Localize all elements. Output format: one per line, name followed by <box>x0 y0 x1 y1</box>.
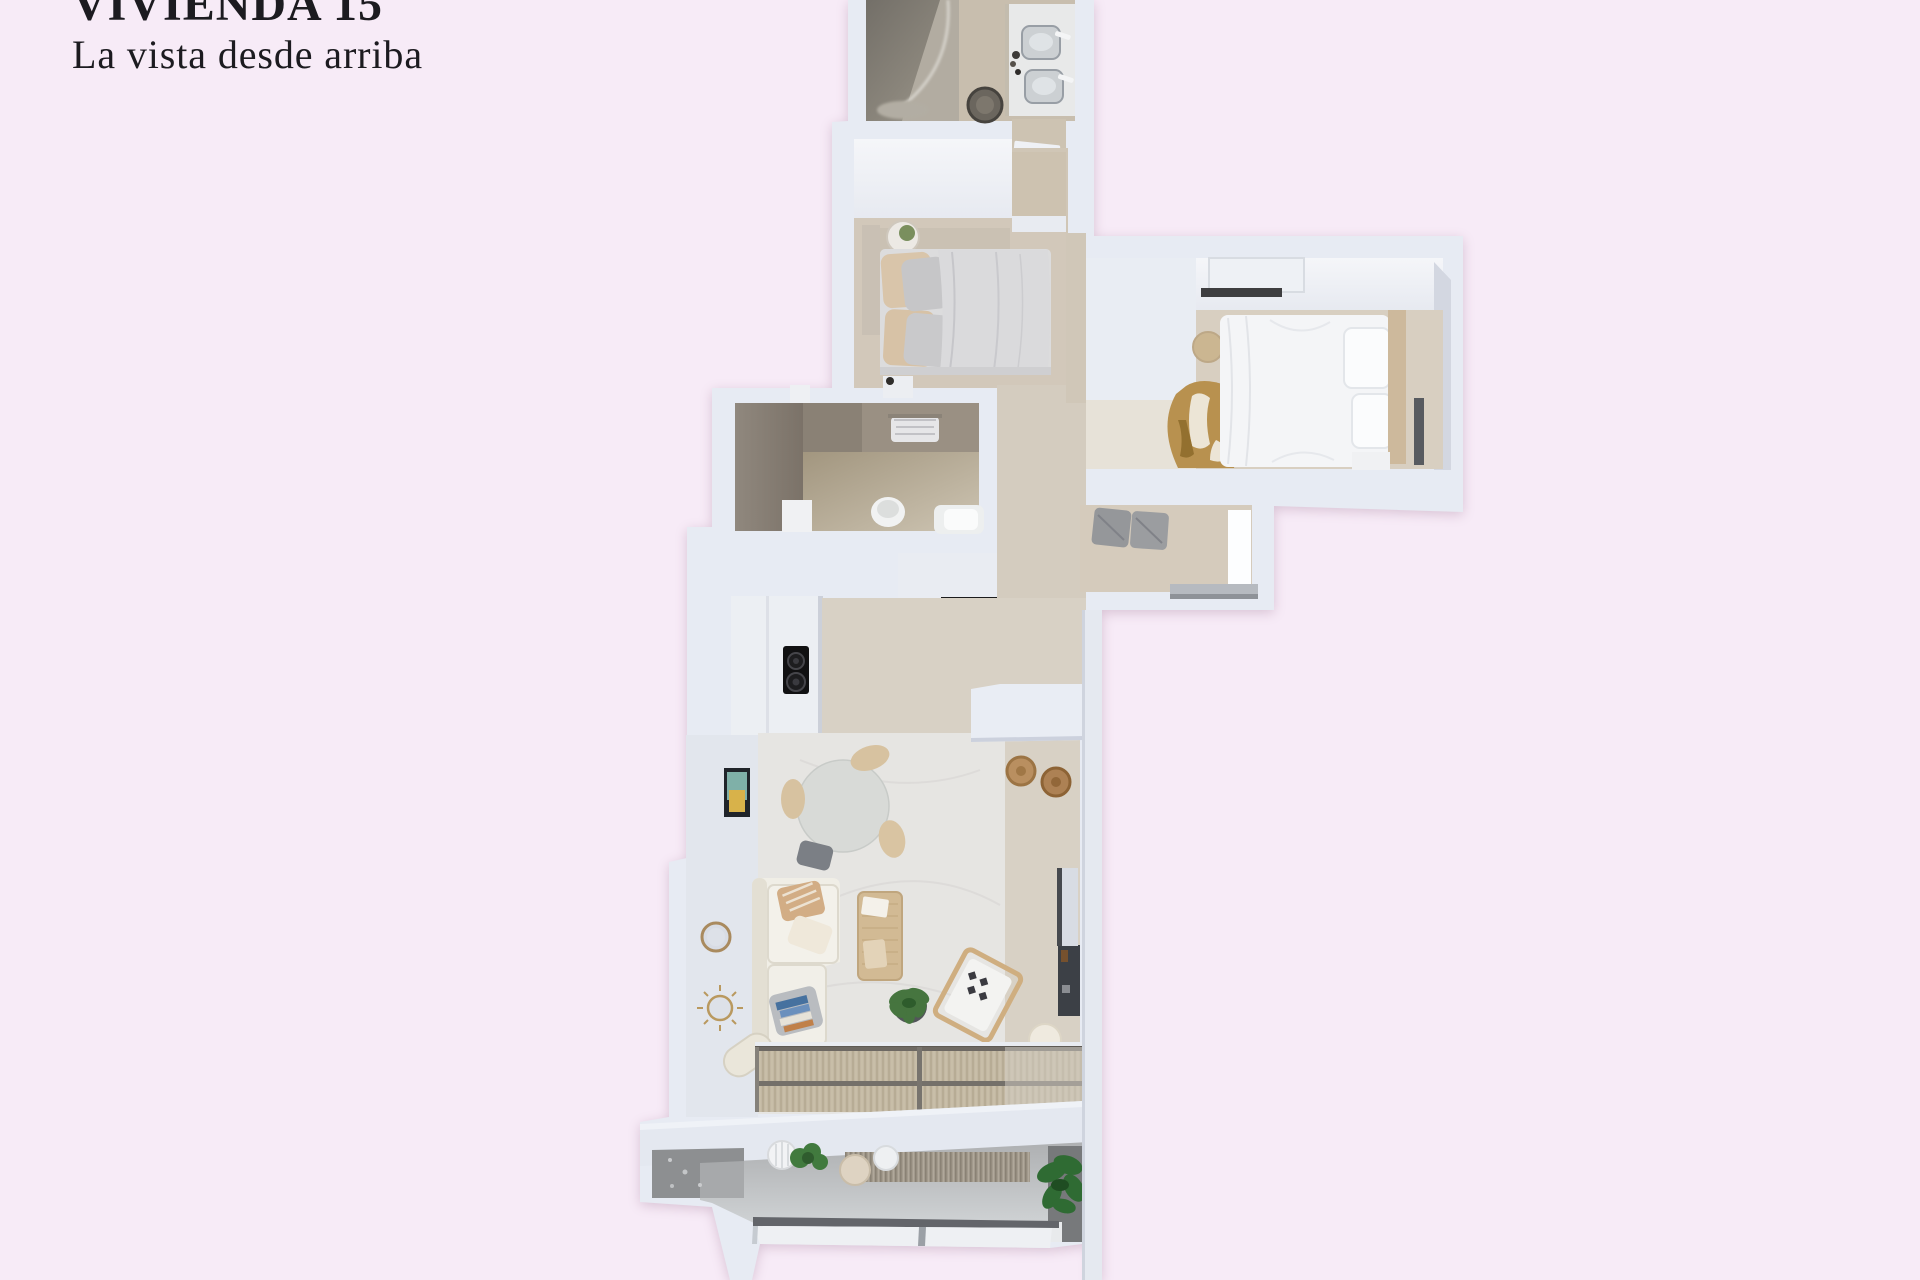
svg-text:La vista desde arriba: La vista desde arriba <box>72 32 423 77</box>
svg-text:VIVIENDA 15: VIVIENDA 15 <box>72 0 383 31</box>
